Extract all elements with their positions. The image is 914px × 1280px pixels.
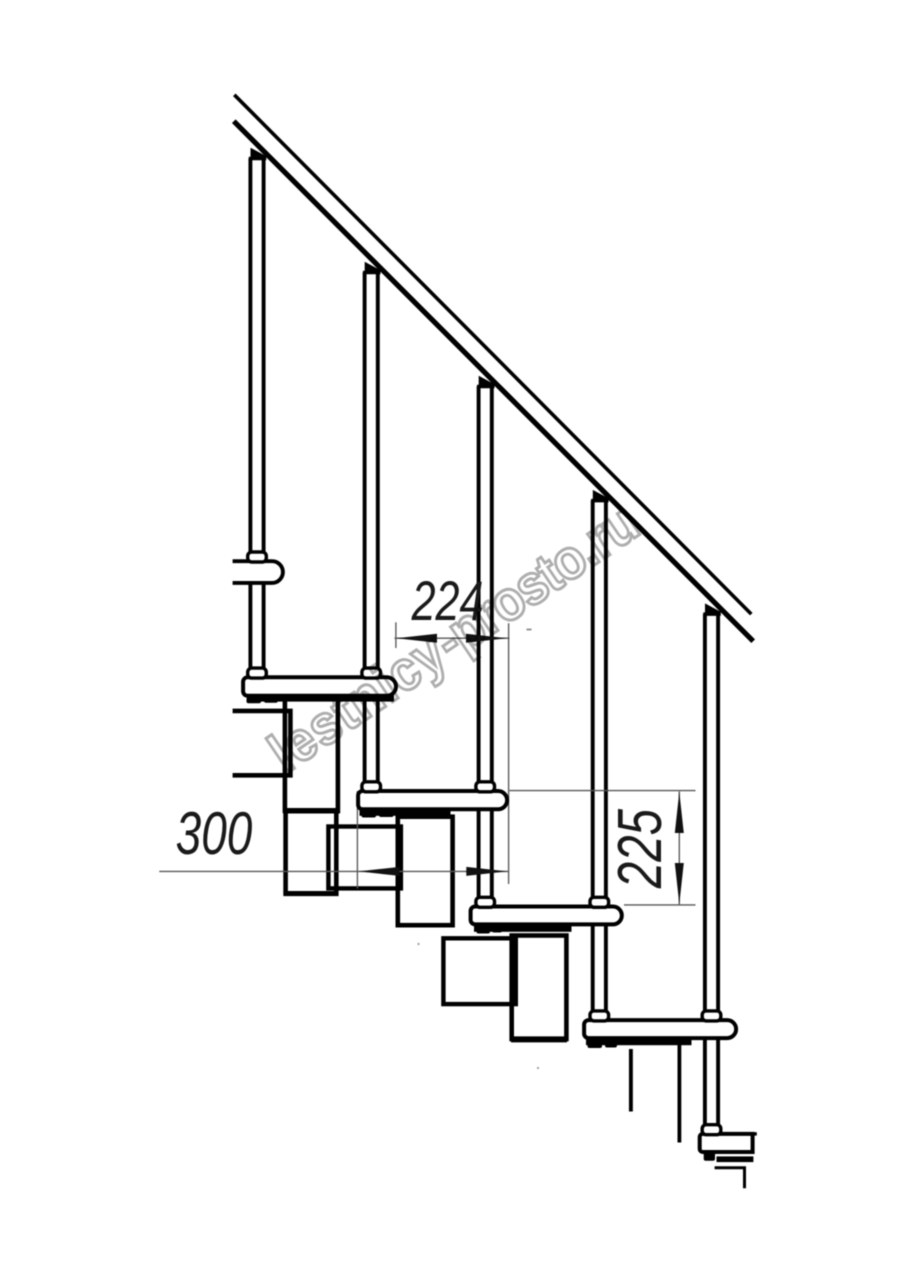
svg-text:300: 300 bbox=[176, 801, 253, 867]
svg-text:225: 225 bbox=[605, 809, 675, 889]
